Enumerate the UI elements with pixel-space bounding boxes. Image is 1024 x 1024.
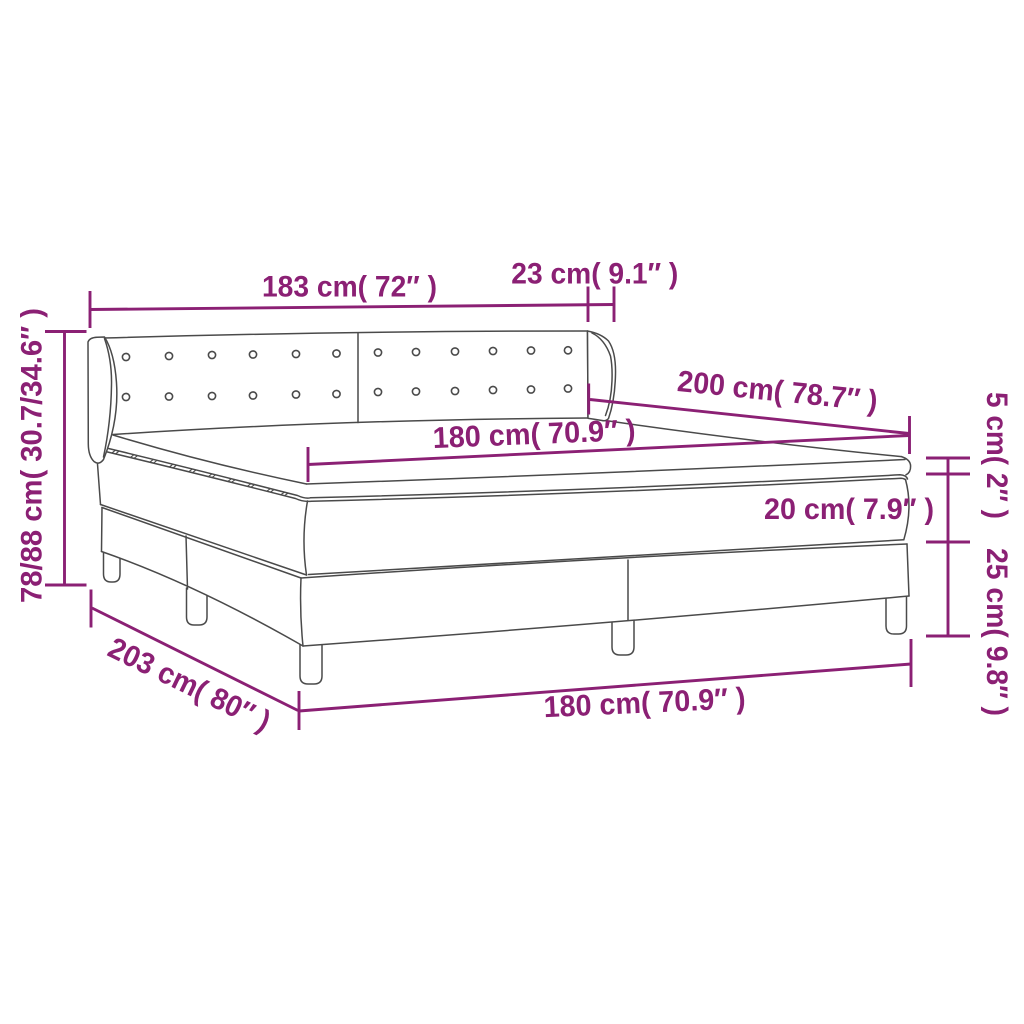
svg-text:25 cm( 9.8″ ): 25 cm( 9.8″ ) [980, 548, 1013, 716]
svg-text:20 cm( 7.9″ ): 20 cm( 7.9″ ) [764, 493, 934, 526]
svg-text:23 cm( 9.1″ ): 23 cm( 9.1″ ) [511, 258, 678, 291]
svg-text:78/88 cm( 30.7/34.6″ ): 78/88 cm( 30.7/34.6″ ) [16, 308, 49, 603]
svg-text:183 cm( 72″ ): 183 cm( 72″ ) [262, 271, 437, 304]
svg-text:5 cm( 2″ ): 5 cm( 2″ ) [980, 392, 1013, 519]
